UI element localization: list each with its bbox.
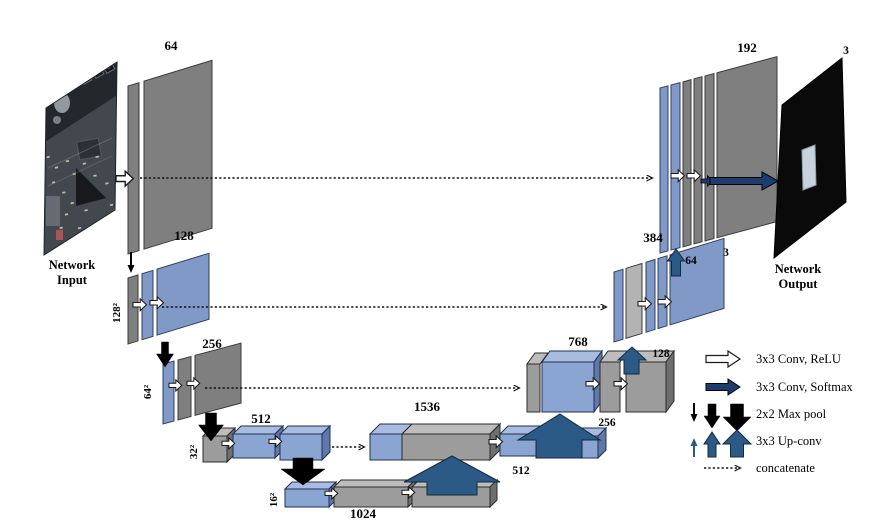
- legend-conv-relu-icon: [706, 351, 740, 367]
- encoder-row3-channels-label: 256: [202, 336, 222, 351]
- legend-conv-softmax-icon: [706, 379, 740, 395]
- upconv-to-row4-channels-label: 512: [512, 465, 530, 477]
- legend-maxpool-large-icon: [723, 404, 751, 431]
- encoder-row2-size-label: 128²: [111, 302, 123, 323]
- legend-concat-label: concatenate: [756, 461, 815, 475]
- legend-upconv-large-icon: [723, 430, 751, 457]
- legend-upconv-label: 3x3 Up-conv: [756, 434, 822, 448]
- encoder-row4-channels-label: 512: [251, 411, 271, 426]
- maxpool-arrow-row4-icon: [281, 458, 325, 485]
- decoder-row2-out-label: 3: [723, 247, 729, 259]
- legend-upconv-medium-icon: [704, 432, 720, 457]
- segmented-defect-region: [802, 145, 816, 190]
- legend-maxpool-medium-icon: [704, 404, 720, 428]
- legend-conv-relu-label: 3x3 Conv, ReLU: [756, 352, 841, 366]
- legend: 3x3 Conv, ReLU 3x3 Conv, Softmax 2x2 Max…: [694, 351, 854, 475]
- unet-architecture-figure: Network Input 64 192 3 Network Output 12…: [0, 0, 888, 529]
- encoder-row1-plates: [128, 60, 212, 254]
- decoder-row1-channels-label: 192: [737, 40, 757, 55]
- upconv-to-row2-channels-label: 128: [652, 348, 670, 360]
- network-input-label-line2: Input: [57, 273, 88, 287]
- network-input-label-line1: Network: [49, 258, 96, 272]
- network-output-label-line2: Output: [779, 277, 819, 291]
- decoder-row3-channels-label: 768: [568, 334, 588, 349]
- output-channels-label: 3: [843, 45, 849, 57]
- decoder-row3-boxes: [527, 351, 674, 412]
- network-input-image: [38, 52, 124, 264]
- decoder-row1-plates: [660, 57, 777, 253]
- bottleneck-size-label: 16²: [268, 492, 280, 507]
- bottleneck-channels-label: 1024: [350, 506, 377, 521]
- network-output-image: [774, 58, 846, 258]
- encoder-row1-channels-label: 64: [165, 38, 179, 53]
- encoder-row4-size-label: 32²: [188, 444, 200, 459]
- encoder-row2-channels-label: 128: [174, 228, 194, 243]
- decoder-row4-channels-label: 1536: [414, 399, 441, 414]
- network-output-label-line1: Network: [775, 262, 822, 276]
- legend-maxpool-label: 2x2 Max pool: [756, 407, 827, 421]
- legend-conv-softmax-label: 3x3 Conv, Softmax: [756, 380, 854, 394]
- decoder-row2-plates: [614, 238, 724, 342]
- decoder-row2-channels-label: 384: [643, 230, 663, 245]
- encoder-row3-size-label: 64²: [142, 384, 154, 399]
- upconv-to-row3-channels-label: 256: [598, 417, 616, 429]
- unet-diagram: Network Input 64 192 3 Network Output 12…: [0, 0, 888, 529]
- upconv-to-row1-channels-label: 64: [685, 255, 697, 267]
